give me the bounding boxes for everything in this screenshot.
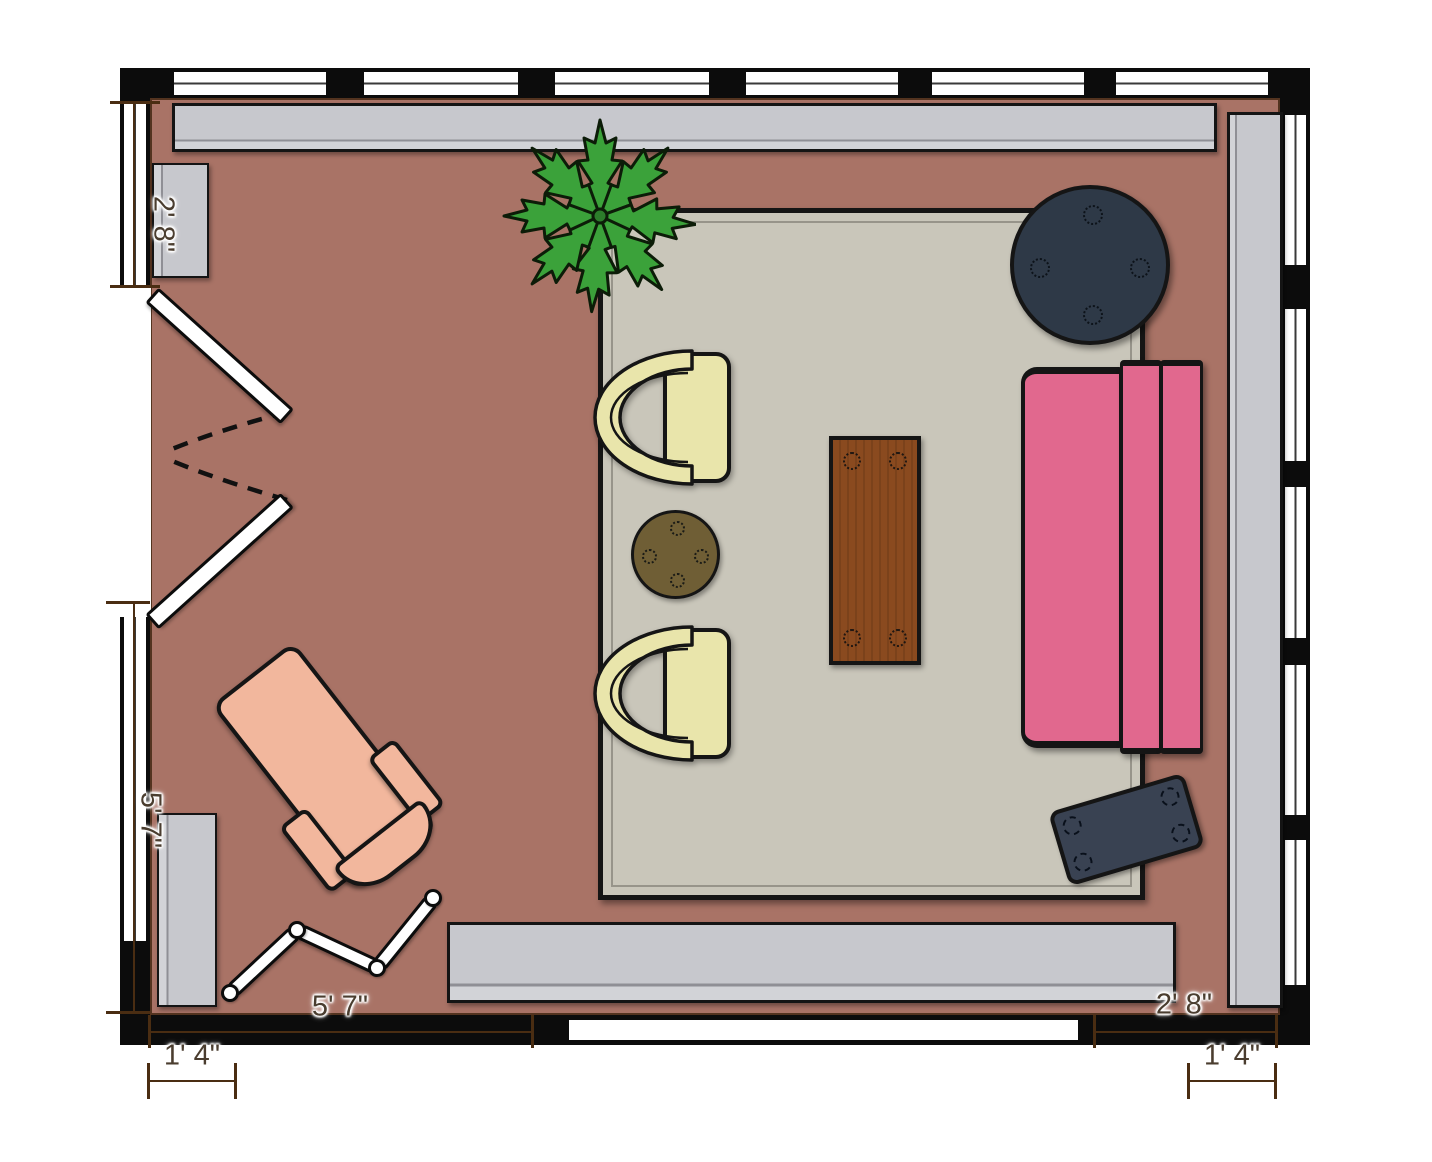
dim-tick (110, 285, 160, 288)
dim-tick (531, 1015, 534, 1048)
coffee-table (829, 436, 921, 665)
screw-mark (1169, 821, 1193, 845)
dim-tick (1275, 1015, 1278, 1048)
screw-mark (1083, 205, 1103, 225)
dim-tick (1093, 1015, 1096, 1048)
dim-tick (106, 601, 150, 604)
right-sideboard (1227, 112, 1283, 1008)
top-window-5 (930, 70, 1086, 97)
tub-armchair-upper (591, 346, 734, 489)
dim-tick (147, 1063, 150, 1099)
screw-mark (1158, 785, 1182, 809)
dim-line-offset-left (149, 1080, 236, 1082)
top-window-3 (553, 70, 711, 97)
dim-label-bottom-left: 5' 7" (312, 991, 368, 1024)
dim-label-offset-right: 1' 4" (1204, 1040, 1260, 1073)
dim-tick (110, 101, 160, 104)
top-window-1 (172, 70, 328, 97)
round-table (1010, 185, 1170, 345)
dim-line-offset-right (1189, 1080, 1276, 1082)
right-window-2 (1283, 307, 1308, 463)
screw-mark (642, 549, 657, 564)
screw-mark (694, 549, 709, 564)
left-window-lower (122, 603, 148, 943)
dim-line-bottom-left (150, 1031, 533, 1033)
right-window-5 (1283, 838, 1308, 987)
screw-mark (889, 452, 907, 470)
dim-label-left-lower: 5' 7" (134, 792, 167, 848)
top-window-2 (362, 70, 520, 97)
screw-mark (670, 521, 685, 536)
floor-plan-canvas: 2' 8" 5' 7" 5' 7" 1' 4" 2' 8" 1' 4" (0, 0, 1432, 1162)
screen-hinge (368, 959, 386, 977)
dim-tick (234, 1063, 237, 1099)
screen-hinge (424, 889, 442, 907)
sofa-back-rail (1160, 360, 1203, 754)
bottom-window (567, 1018, 1080, 1042)
screen-hinge (221, 984, 239, 1002)
screw-mark (670, 573, 685, 588)
bottom-sideboard (447, 922, 1176, 1003)
dim-label-left-upper: 2' 8" (147, 196, 180, 252)
round-side-table (631, 510, 720, 599)
dim-line-left-upper (133, 103, 135, 287)
dim-label-bottom-right: 2' 8" (1156, 989, 1212, 1022)
dim-tick (1274, 1063, 1277, 1099)
screw-mark (1130, 258, 1150, 278)
dim-tick (106, 1011, 150, 1014)
dim-line-bottom-right (1095, 1031, 1277, 1033)
screw-mark (1071, 850, 1095, 874)
screw-mark (843, 629, 861, 647)
dim-label-offset-left: 1' 4" (164, 1040, 220, 1073)
dim-tick (148, 1015, 151, 1048)
dim-tick (1187, 1063, 1190, 1099)
sofa-seat (1021, 367, 1123, 748)
door-opening (120, 287, 151, 617)
top-window-4 (744, 70, 900, 97)
screw-mark (843, 452, 861, 470)
screw-mark (1083, 305, 1103, 325)
potted-plant (500, 112, 696, 316)
screw-mark (889, 629, 907, 647)
screw-mark (1030, 258, 1050, 278)
tub-armchair-lower (591, 622, 734, 765)
sofa-back-cushion (1120, 360, 1162, 754)
right-window-1 (1283, 113, 1308, 267)
right-window-3 (1283, 485, 1308, 640)
right-window-4 (1283, 663, 1308, 817)
screen-hinge (288, 921, 306, 939)
top-window-6 (1114, 70, 1270, 97)
screw-mark (1060, 814, 1084, 838)
left-window-upper (122, 100, 148, 287)
